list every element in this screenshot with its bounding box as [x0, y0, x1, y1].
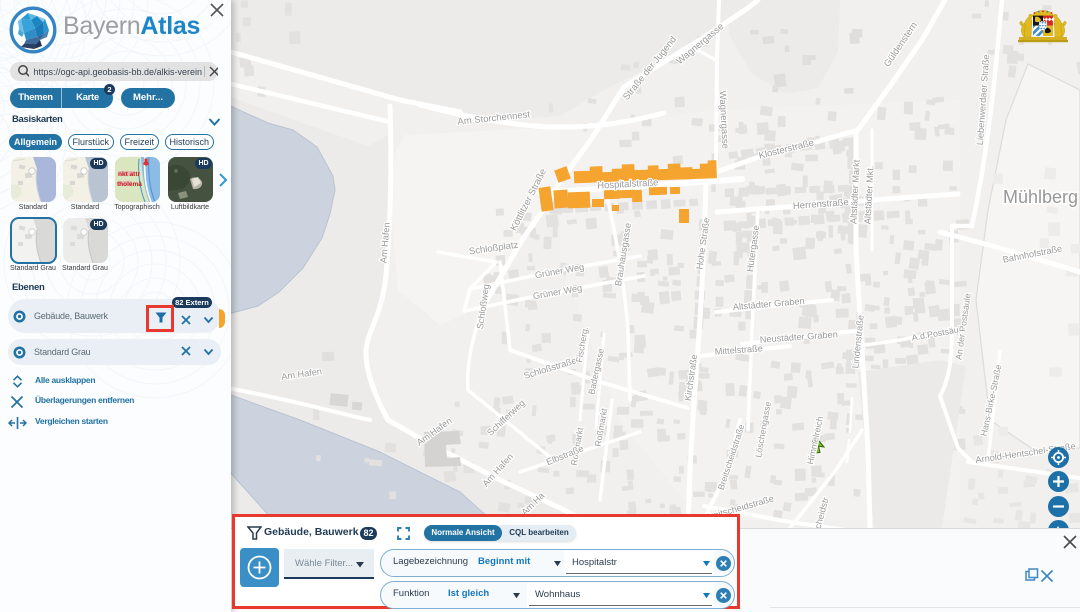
svg-text:tholemä: tholemä — [117, 181, 142, 188]
svg-text:nkt attr: nkt attr — [118, 171, 141, 178]
svg-text:Mühlberg: Mühlberg — [1003, 187, 1078, 207]
